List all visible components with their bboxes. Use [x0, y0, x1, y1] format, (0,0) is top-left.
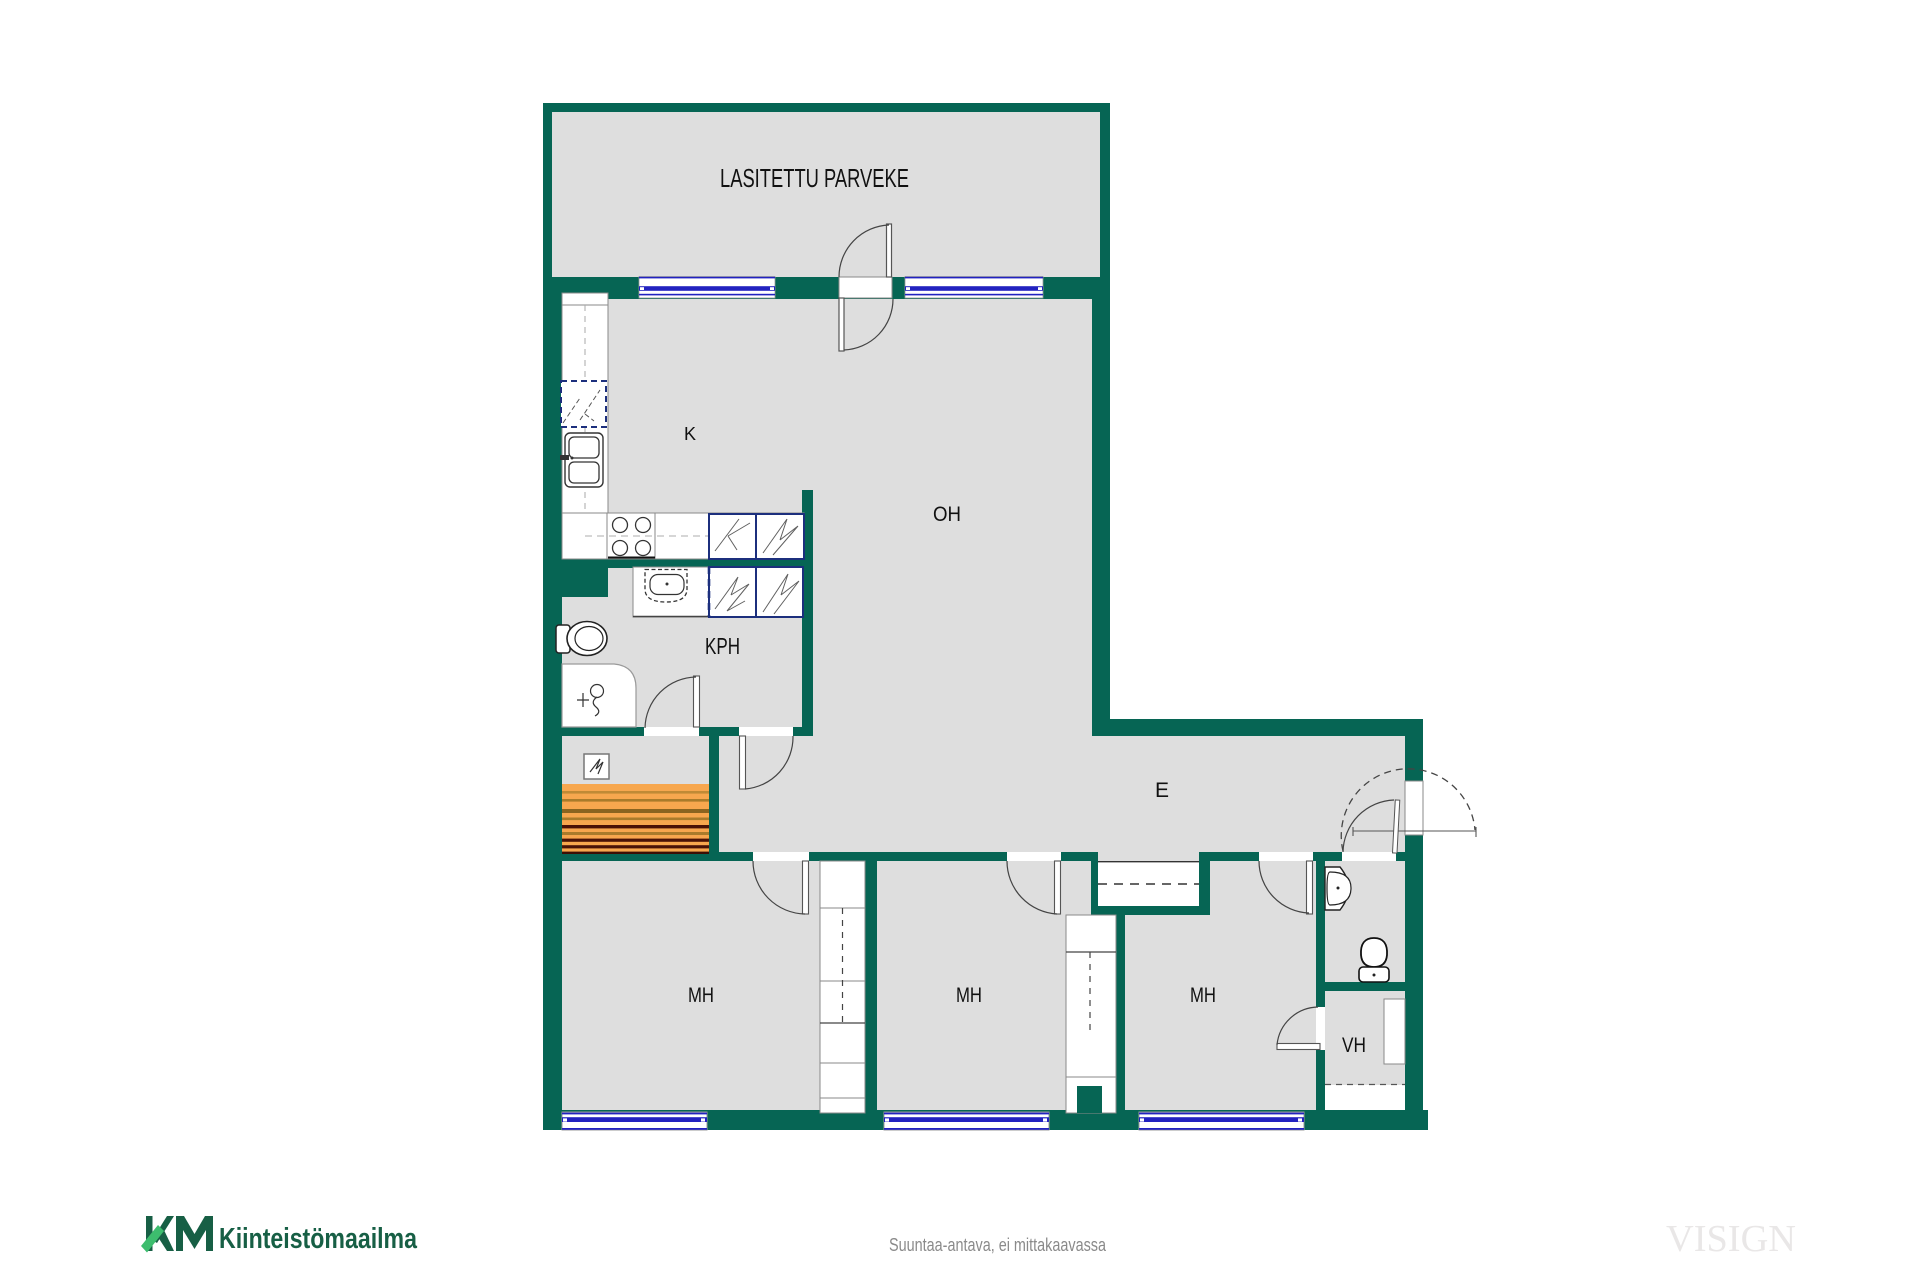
svg-text:MH: MH — [956, 984, 982, 1007]
svg-text:Kiinteistömaailma: Kiinteistömaailma — [219, 1223, 418, 1255]
svg-text:LASITETTU PARVEKE: LASITETTU PARVEKE — [720, 163, 909, 193]
svg-text:VISIGN: VISIGN — [1666, 1218, 1796, 1260]
svg-text:K: K — [684, 424, 696, 444]
svg-text:Suuntaa-antava, ei mittakaavas: Suuntaa-antava, ei mittakaavassa — [889, 1235, 1107, 1255]
svg-text:OH: OH — [933, 503, 961, 526]
svg-text:MH: MH — [688, 984, 714, 1007]
svg-text:E: E — [1155, 779, 1169, 802]
svg-text:MH: MH — [1190, 984, 1216, 1007]
svg-text:VH: VH — [1342, 1034, 1366, 1057]
svg-text:KPH: KPH — [705, 633, 740, 659]
